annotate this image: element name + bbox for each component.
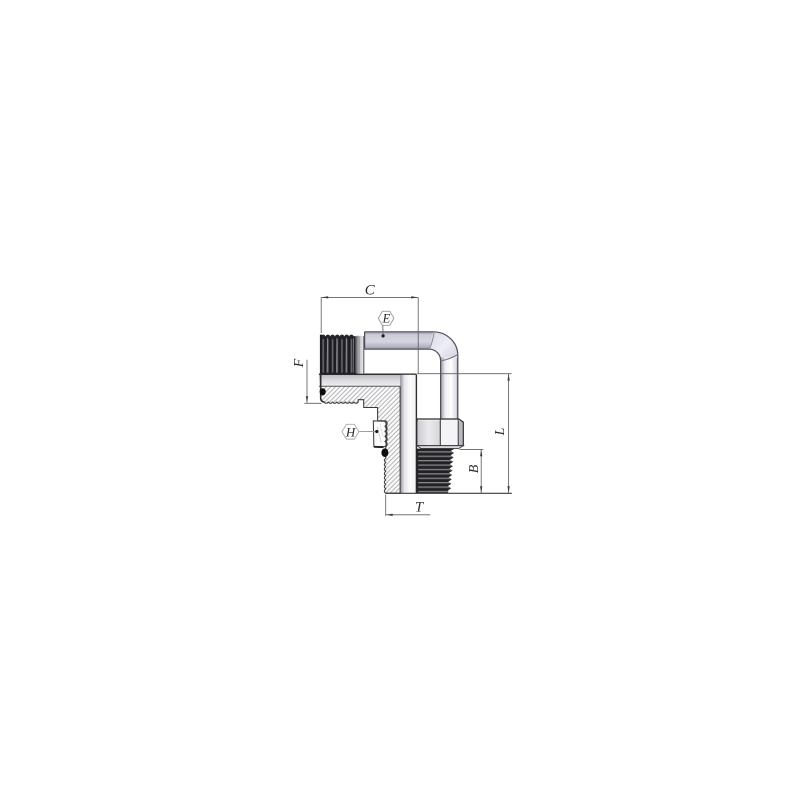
svg-text:B: B	[467, 464, 482, 473]
svg-text:T: T	[415, 500, 424, 516]
svg-text:E: E	[382, 311, 391, 325]
svg-text:H: H	[345, 424, 356, 439]
svg-text:F: F	[292, 358, 307, 368]
svg-text:L: L	[493, 427, 508, 436]
svg-text:C: C	[365, 282, 376, 298]
